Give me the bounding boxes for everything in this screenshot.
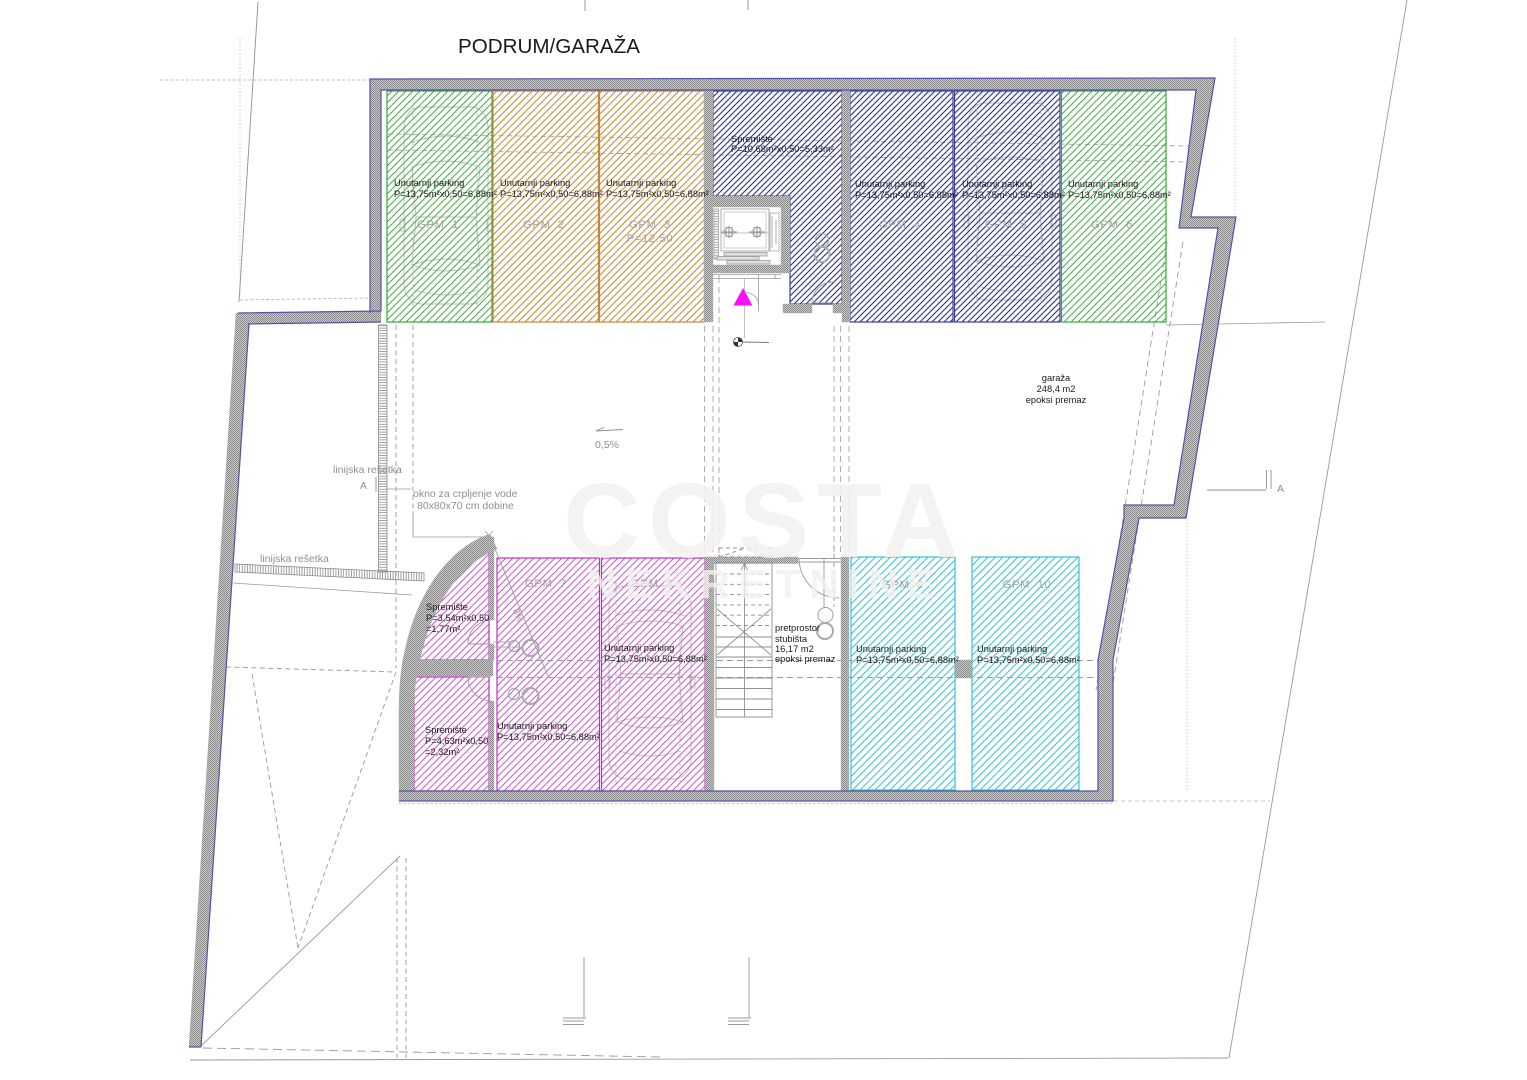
svg-text:P=13,75m²x0,50=6,88m²: P=13,75m²x0,50=6,88m²: [497, 732, 600, 742]
svg-text:GPM 7: GPM 7: [525, 578, 567, 590]
svg-text:P=13,75m²x0,50=6,88m²: P=13,75m²x0,50=6,88m²: [394, 189, 497, 199]
svg-text:P=13,75m²x0,50=6,88m²: P=13,75m²x0,50=6,88m²: [962, 190, 1065, 200]
svg-text:pretprostor: pretprostor: [775, 623, 820, 633]
svg-text:P=13,75m²x0,50=6,88m²: P=13,75m²x0,50=6,88m²: [500, 189, 603, 199]
svg-text:P=12.50: P=12.50: [627, 233, 674, 245]
svg-text:A: A: [360, 480, 367, 492]
svg-text:GPM 4: GPM 4: [879, 219, 921, 231]
svg-text:P=3,54m²x0,50: P=3,54m²x0,50: [426, 613, 489, 623]
svg-text:epoksi premaz: epoksi premaz: [775, 654, 836, 664]
svg-text:GPM 1: GPM 1: [417, 219, 459, 231]
svg-text:=1,77m²: =1,77m²: [426, 624, 460, 634]
svg-text:linijska rešetka: linijska rešetka: [260, 553, 329, 565]
svg-text:P=13,75m²x0,50=6,88m²: P=13,75m²x0,50=6,88m²: [1068, 190, 1171, 200]
svg-text:P=13,75m²x0,50=6,88m²: P=13,75m²x0,50=6,88m²: [604, 654, 707, 664]
svg-text:0,5%: 0,5%: [595, 439, 619, 451]
svg-text:248,4 m2: 248,4 m2: [1037, 384, 1076, 394]
svg-text:Spremište: Spremište: [731, 134, 773, 144]
svg-text:GPM 5: GPM 5: [985, 219, 1027, 231]
svg-text:okno za crpljenje vode: okno za crpljenje vode: [413, 488, 518, 500]
svg-text:PODRUM/GARAŽA: PODRUM/GARAŽA: [458, 35, 640, 58]
svg-text:P=13,75m²x0,50=6,88m²: P=13,75m²x0,50=6,88m²: [855, 190, 958, 200]
svg-text:Unutarnji parking: Unutarnji parking: [394, 178, 464, 188]
svg-text:Unutarnji parking: Unutarnji parking: [606, 178, 676, 188]
svg-text:GPM 6: GPM 6: [1091, 219, 1133, 231]
svg-text:A: A: [1277, 483, 1284, 495]
svg-text:stubišta: stubišta: [775, 634, 808, 644]
svg-text:Unutarnji parking: Unutarnji parking: [977, 644, 1047, 654]
svg-text:GPM 2: GPM 2: [523, 219, 565, 231]
svg-text:P=13,75m²x0,50=6,88m²: P=13,75m²x0,50=6,88m²: [856, 655, 959, 665]
svg-text:=2,32m²: =2,32m²: [425, 747, 459, 757]
svg-text:Unutarnji parking: Unutarnji parking: [497, 721, 567, 731]
svg-text:Unutarnji parking: Unutarnji parking: [1068, 179, 1138, 189]
svg-text:Unutarnji parking: Unutarnji parking: [856, 644, 926, 654]
svg-text:Unutarnji parking: Unutarnji parking: [500, 178, 570, 188]
svg-text:P=4,63m²x0,50: P=4,63m²x0,50: [425, 736, 488, 746]
svg-text:GPM 3: GPM 3: [629, 219, 671, 231]
svg-text:Unutarnji parking: Unutarnji parking: [604, 643, 674, 653]
svg-text:Unutarnji parking: Unutarnji parking: [962, 179, 1032, 189]
svg-text:P=13,75m²x0,50=6,88m²: P=13,75m²x0,50=6,88m²: [606, 189, 709, 199]
svg-text:epoksi premaz: epoksi premaz: [1026, 395, 1087, 405]
svg-text:Unutarnji parking: Unutarnji parking: [855, 179, 925, 189]
svg-text:linijska rešetka: linijska rešetka: [333, 464, 402, 476]
svg-text:P=13,75m²x0,50=6,88m²: P=13,75m²x0,50=6,88m²: [977, 655, 1080, 665]
svg-text:80x80x70 cm dobine: 80x80x70 cm dobine: [417, 500, 514, 512]
svg-text:Spremište: Spremište: [426, 602, 468, 612]
svg-text:garaža: garaža: [1042, 373, 1071, 383]
svg-text:NEKRETNINE: NEKRETNINE: [587, 561, 944, 607]
svg-text:P=10,68m²x0,50=5,33m²: P=10,68m²x0,50=5,33m²: [731, 144, 834, 154]
svg-text:Spremište: Spremište: [425, 725, 467, 735]
svg-text:GPM 10: GPM 10: [1003, 579, 1052, 591]
svg-text:16,17 m2: 16,17 m2: [775, 644, 814, 654]
